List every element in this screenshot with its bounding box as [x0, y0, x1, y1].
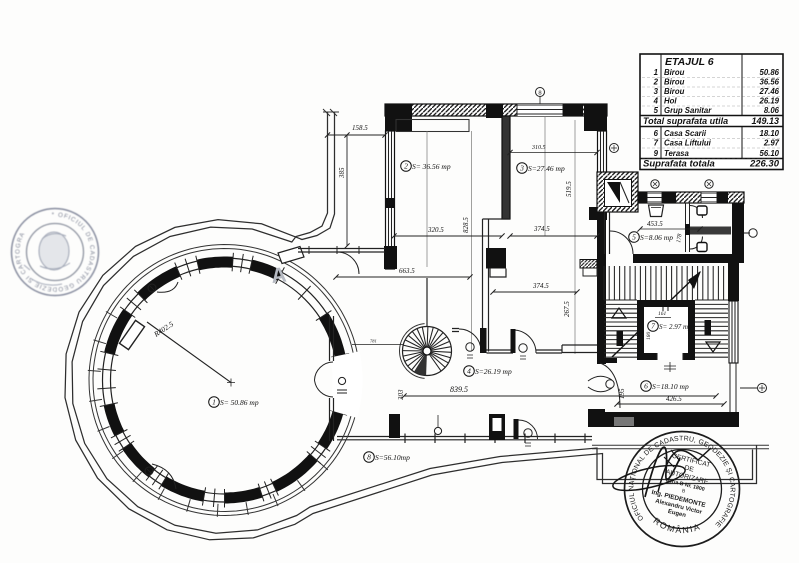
- svg-text:4: 4: [467, 367, 471, 376]
- svg-text:180: 180: [646, 332, 652, 341]
- svg-text:4: 4: [653, 97, 659, 106]
- svg-text:36.56: 36.56: [759, 78, 779, 87]
- svg-text:S=18.10 mp: S=18.10 mp: [652, 382, 689, 391]
- svg-text:149.13: 149.13: [751, 116, 779, 126]
- svg-text:Birou: Birou: [664, 68, 685, 77]
- svg-text:5: 5: [654, 106, 659, 115]
- svg-text:S= 36.56 mp: S= 36.56 mp: [412, 162, 451, 171]
- svg-text:320.5: 320.5: [427, 226, 444, 234]
- svg-text:S=56.10mp: S=56.10mp: [375, 453, 410, 462]
- svg-text:S=27.46 mp: S=27.46 mp: [528, 164, 565, 173]
- svg-text:2.97: 2.97: [763, 139, 780, 148]
- svg-text:158.5: 158.5: [352, 124, 368, 132]
- svg-text:Terasa: Terasa: [664, 149, 690, 158]
- svg-text:8: 8: [538, 90, 541, 97]
- svg-text:7: 7: [654, 139, 659, 148]
- svg-text:781: 781: [370, 339, 377, 344]
- svg-text:839.5: 839.5: [450, 385, 468, 394]
- svg-text:195: 195: [618, 388, 626, 399]
- svg-text:7: 7: [651, 322, 655, 331]
- svg-text:8: 8: [367, 453, 371, 462]
- svg-text:26.19: 26.19: [758, 97, 779, 106]
- svg-text:Casa Scarii: Casa Scarii: [664, 129, 707, 138]
- svg-text:3: 3: [654, 87, 659, 96]
- svg-text:226.30: 226.30: [749, 159, 780, 170]
- svg-text:374.5: 374.5: [533, 225, 550, 233]
- svg-text:161: 161: [658, 311, 667, 317]
- svg-text:Birou: Birou: [664, 87, 685, 96]
- svg-text:519.5: 519.5: [565, 181, 573, 197]
- svg-text:Hol: Hol: [664, 97, 677, 106]
- svg-text:828.5: 828.5: [462, 217, 470, 233]
- svg-text:663.5: 663.5: [399, 267, 415, 275]
- svg-text:1: 1: [654, 68, 658, 77]
- svg-text:S=26.19 mp: S=26.19 mp: [475, 367, 512, 376]
- svg-text:9: 9: [654, 149, 659, 158]
- svg-text:2: 2: [404, 162, 408, 171]
- svg-text:Casa Liftului: Casa Liftului: [664, 139, 712, 148]
- svg-text:2: 2: [653, 78, 659, 87]
- svg-text:1: 1: [212, 398, 216, 407]
- svg-text:267.5: 267.5: [563, 301, 571, 317]
- svg-text:18.10: 18.10: [759, 129, 779, 138]
- svg-text:Suprafata totala: Suprafata totala: [643, 159, 715, 170]
- svg-text:303: 303: [397, 389, 405, 401]
- svg-text:426.5: 426.5: [666, 395, 682, 403]
- svg-text:50.86: 50.86: [759, 68, 779, 77]
- svg-text:Birou: Birou: [664, 78, 685, 87]
- svg-text:6: 6: [644, 382, 648, 391]
- svg-text:Total suprafata utila: Total suprafata utila: [643, 116, 728, 126]
- svg-text:27.46: 27.46: [758, 87, 779, 96]
- svg-text:ETAJUL 6: ETAJUL 6: [665, 56, 714, 68]
- svg-text:S= 50.86 mp: S= 50.86 mp: [220, 398, 259, 407]
- svg-text:S=8.06 mp: S=8.06 mp: [640, 233, 673, 242]
- svg-text:8.06: 8.06: [764, 106, 780, 115]
- svg-text:A: A: [270, 264, 287, 288]
- svg-text:5: 5: [632, 233, 636, 242]
- svg-text:S= 2.97 mp: S= 2.97 mp: [659, 323, 692, 331]
- svg-text:385: 385: [338, 167, 346, 179]
- svg-text:6: 6: [654, 129, 659, 138]
- svg-text:Grup Sanitar: Grup Sanitar: [664, 106, 712, 115]
- svg-text:374.5: 374.5: [532, 282, 549, 290]
- svg-text:56.10: 56.10: [759, 149, 779, 158]
- svg-text:3: 3: [519, 164, 524, 173]
- svg-text:310.5: 310.5: [531, 145, 546, 151]
- svg-text:453.5: 453.5: [647, 220, 663, 228]
